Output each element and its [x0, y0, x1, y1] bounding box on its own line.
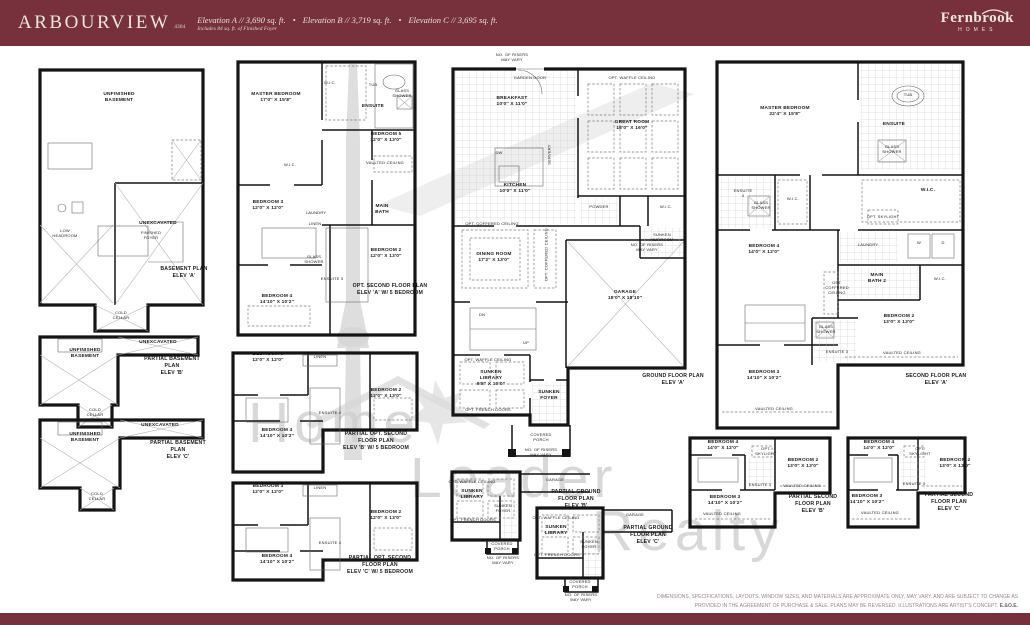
o-caption-label: OPT. SECOND FLOOR PLAN ELEV 'A' W/ 5 BED…: [350, 283, 430, 297]
ps-c-bed3-label: BEDROOM 3 14'10″ X 10'2″: [840, 494, 894, 506]
s-caption-label: SECOND FLOOR PLAN ELEV 'A': [898, 373, 974, 387]
pb-c-unfinished-label: UNFINISHED BASEMENT: [55, 432, 115, 444]
o-tub-label: TUB: [364, 82, 382, 87]
b-caption-label: BASEMENT PLAN ELEV 'A': [152, 266, 216, 280]
pg-c-porch-label: COVERED PORCH: [559, 579, 601, 589]
ps-c-bed2-label: BEDROOM 2 13'0″ X 13'0″: [928, 458, 982, 470]
o-wic2-label: W.I.C.: [276, 162, 304, 167]
ps-b-bed3-label: BEDROOM 3 14'10″ X 10'2″: [698, 495, 752, 507]
s-tub-label: TUB: [899, 92, 917, 97]
pb-c-cold-label: COLD CELLAR: [79, 491, 115, 501]
po-b-bed4-label: BEDROOM 4 14'10″ X 10'2″: [246, 428, 308, 440]
g-opt-french-label: OPT. FRENCH DOORS: [458, 407, 518, 412]
plan-labels: UNFINISHED BASEMENTLOW HEADROOMFINISHED …: [0, 0, 1030, 625]
g-breakfast-label: BREAKFAST 10'0″ X 11'0″: [482, 96, 542, 108]
s-wic1-label: W.I.C.: [910, 188, 946, 194]
po-b-linen-label: LINEN: [303, 354, 337, 359]
g-opt-coffered-dining-label: OPT. COFFERED CEILING: [457, 221, 527, 226]
s-bath2-label: MAIN BATH 2: [860, 273, 894, 285]
s-bed3-label: BEDROOM 3 14'10″ X 10'2″: [731, 370, 797, 382]
o-wic1-label: W.I.C.: [315, 80, 345, 85]
po-c-bed4-label: BEDROOM 4 14'10″ X 10'2″: [246, 554, 308, 566]
g-kitchen-label: KITCHEN 10'0″ X 11'0″: [485, 183, 545, 195]
pg-b-risers-label: NO. OF RISERS MAY VARY: [478, 555, 528, 565]
disclaimer-line-1: DIMENSIONS, SPECIFICATIONS, LAYOUTS, WIN…: [657, 593, 1018, 602]
g-garden-door-label: GARDEN DOOR: [505, 75, 555, 80]
g-no-risers-top-label: NO. OF RISERS MAY VARY: [485, 52, 539, 62]
s-wic2-label: W.I.C.: [779, 196, 807, 201]
b-unex-label: UNEXCAVATED: [128, 221, 188, 227]
s-glass3-label: GLASS SHOWER: [812, 324, 840, 334]
ps-c-bed4-label: BEDROOM 4 14'0″ X 12'0″: [852, 440, 906, 452]
s-w-label: W: [911, 240, 927, 245]
eoe-mark: E.&O.E.: [1000, 603, 1018, 609]
pb-b-cold-label: COLD CELLAR: [77, 407, 113, 417]
po-b-bed2-label: BEDROOM 2 12'0″ X 13'0″: [358, 388, 414, 400]
disclaimer-line-2: PROVIDED IN THE AGREEMENT OF PURCHASE & …: [657, 602, 1018, 611]
po-b-ens4-label: ENSUITE 4: [310, 410, 350, 415]
g-powder-label: POWDER: [580, 204, 618, 209]
pg-c-foyer-label: SUNKEN FOYER: [572, 539, 606, 549]
g-dw-label: DW: [492, 150, 506, 155]
o-bed2-label: BEDROOM 2 12'0″ X 13'0″: [358, 248, 414, 260]
pg-b-caption-label: PARTIAL GROUND FLOOR PLAN ELEV 'B': [543, 489, 609, 509]
s-bed4-label: BEDROOM 4 14'0″ X 12'0″: [731, 244, 797, 256]
pb-b-unfinished-label: UNFINISHED BASEMENT: [55, 348, 115, 360]
s-master-label: MASTER BEDROOM 22'4″ X 15'8″: [750, 106, 820, 118]
pg-c-garage-label: GARAGE: [615, 512, 655, 517]
s-wic3-label: W.I.C.: [922, 276, 958, 281]
pb-c-caption-label: PARTIAL BASEMENT PLAN ELEV 'C': [146, 440, 210, 460]
g-up-label: UP: [518, 340, 534, 345]
pg-b-garage-label: GARAGE: [535, 477, 575, 482]
s-ensuite4-label: ENSUITE 4: [729, 188, 757, 198]
ps-b-caption-label: PARTIAL SECOND FLOOR PLAN ELEV 'B': [780, 494, 846, 514]
o-bed3-label: BEDROOM 3 12'0″ X 12'0″: [240, 200, 296, 212]
ps-b-sky-label: OPT. SKYLIGHT: [750, 446, 782, 456]
pb-b-caption-label: PARTIAL BASEMENT PLAN ELEV 'B': [140, 356, 204, 376]
o-master-label: MASTER BEDROOM 17'0″ X 15'8″: [240, 92, 312, 104]
g-servery-label: SERVERY: [546, 133, 551, 177]
s-skylight-label: OPT. SKYLIGHT: [860, 214, 906, 219]
g-no-risers-porch-label: NO. OF RISERS MAY VARY: [514, 447, 568, 457]
po-b-bed3-label: BEDROOM 3 12'0″ X 12'0″: [240, 352, 296, 364]
po-c-bed2-label: BEDROOM 2 12'0″ X 13'0″: [358, 510, 414, 522]
o-glass2-label: GLASS SHOWER: [300, 254, 328, 264]
g-porch-label: COVERED PORCH: [517, 432, 565, 442]
s-glass1-label: GLASS SHOWER: [878, 144, 906, 154]
pg-b-library-label: SUNKEN LIBRARY: [450, 489, 494, 501]
g-caption-label: GROUND FLOOR PLAN ELEV 'A': [633, 373, 713, 387]
g-opt-waffle-lib-label: OPT. WAFFLE CEILING: [458, 357, 518, 362]
g-opt-waffle-great-label: OPT. WAFFLE CEILING: [600, 75, 664, 80]
g-wic-label: W.I.C.: [648, 204, 684, 209]
o-glass1-label: GLASS SHOWER: [388, 88, 416, 98]
ps-b-bed2-label: BEDROOM 2 13'0″ X 13'0″: [776, 458, 830, 470]
o-ensuite3-label: ENSUITE 3: [312, 276, 352, 281]
pg-c-french-label: OPT. FRENCH DOORS: [530, 552, 584, 557]
s-bed2-label: BEDROOM 2 13'0″ X 13'0″: [866, 314, 932, 326]
disclaimer: DIMENSIONS, SPECIFICATIONS, LAYOUTS, WIN…: [657, 593, 1018, 610]
ps-c-vault-label: VAULTED CEILING: [856, 510, 904, 515]
o-vault5-label: VAULTED CEILING: [358, 160, 412, 165]
o-linen-label: LINEN: [298, 221, 332, 226]
b-low-label: LOW HEADROOM: [48, 228, 82, 238]
ps-c-ens3-label: ENSUITE 3: [894, 481, 934, 486]
s-glass2-label: GLASS SHOWER: [748, 200, 774, 210]
b-foyer-label: FINISHED FOYER: [131, 230, 171, 240]
pg-c-waffle-label: OPT. WAFFLE CEILING: [530, 515, 582, 520]
o-ensuite-label: ENSUITE: [352, 104, 394, 110]
g-great-room-label: GREAT ROOM 18'0″ X 16'0″: [600, 120, 664, 132]
s-coffered-label: OPT. COFFERED CEILING: [820, 280, 854, 296]
s-vault2-label: VAULTED CEILING: [876, 350, 928, 355]
s-ensuite-label: ENSUITE: [871, 122, 917, 128]
g-garage-label: GARAGE 18'0″ X 18'10″: [592, 290, 658, 302]
g-dn-label: DN: [474, 312, 490, 317]
g-mudroom-label: SUNKEN MUDROOM: [638, 232, 686, 242]
o-bath-label: MAIN BATH: [366, 204, 398, 216]
ps-b-ens3-label: ENSUITE 3: [740, 482, 780, 487]
floor-plan-sheet: ARBOURVIEW 4304 Elevation A // 3,690 sq.…: [0, 0, 1030, 625]
g-dining-label: DINING ROOM 17'2″ X 13'0″: [462, 252, 526, 264]
g-opt-coffered-vert-label: OPT. COFFERED CEILING: [543, 224, 548, 286]
g-library-label: SUNKEN LIBRARY 9'8″ X 10'0″: [465, 370, 517, 389]
s-vault3-label: VAULTED CEILING: [748, 406, 800, 411]
s-d-label: D: [935, 240, 951, 245]
pg-c-risers-label: NO. OF RISERS MAY VARY: [556, 592, 606, 602]
b-unfinished-label: UNFINISHED BASEMENT: [85, 92, 153, 104]
pg-b-french-label: OPT. FRENCH DOORS: [446, 517, 500, 522]
pg-c-caption-label: PARTIAL GROUND FLOOR PLAN ELEV 'C': [615, 525, 681, 545]
ps-c-sky-label: OPT. SKYLIGHT: [904, 446, 936, 456]
b-cold-label: COLD CELLAR: [100, 310, 142, 320]
g-foyer-label: SUNKEN FOYER: [528, 390, 570, 402]
po-c-ens4-label: ENSUITE 4: [310, 540, 350, 545]
ps-b-bed4-label: BEDROOM 4 14'0″ X 12'0″: [696, 440, 750, 452]
po-c-linen-label: LINEN: [303, 485, 337, 490]
ps-b-vault-label: VAULTED CEILING: [778, 483, 826, 488]
pg-c-library-label: SUNKEN LIBRARY: [534, 525, 578, 537]
po-c-caption-label: PARTIAL OPT. SECOND FLOOR PLAN ELEV 'C' …: [342, 555, 418, 575]
ps-c-caption-label: PARTIAL SECOND FLOOR PLAN ELEV 'C': [918, 492, 980, 512]
pg-b-porch-label: COVERED PORCH: [481, 541, 523, 551]
s-laundry-label: LAUNDRY: [846, 242, 890, 247]
pg-b-foyer-label: SUNKEN FOYER: [486, 503, 520, 513]
ps-b-vault2-label: VAULTED CEILING: [698, 511, 746, 516]
pb-c-unex-label: UNEXCAVATED: [130, 423, 190, 429]
pg-b-waffle-label: OPT. WAFFLE CEILING: [446, 479, 498, 484]
g-no-risers-garage-label: NO. OF RISERS MAY VARY: [620, 242, 674, 252]
o-laundry-label: LAUNDRY: [296, 210, 336, 215]
o-bed5-label: BEDROOM 5 12'0″ X 13'0″: [358, 132, 414, 144]
po-b-caption-label: PARTIAL OPT. SECOND FLOOR PLAN ELEV 'B' …: [338, 431, 414, 451]
s-ensuite3-label: ENSUITE 3: [816, 349, 858, 354]
pb-b-unex-label: UNEXCAVATED: [128, 340, 188, 346]
o-bed4-label: BEDROOM 4 14'10″ X 10'2″: [246, 294, 308, 306]
po-c-bed3-label: BEDROOM 3 12'0″ X 12'0″: [240, 484, 296, 496]
